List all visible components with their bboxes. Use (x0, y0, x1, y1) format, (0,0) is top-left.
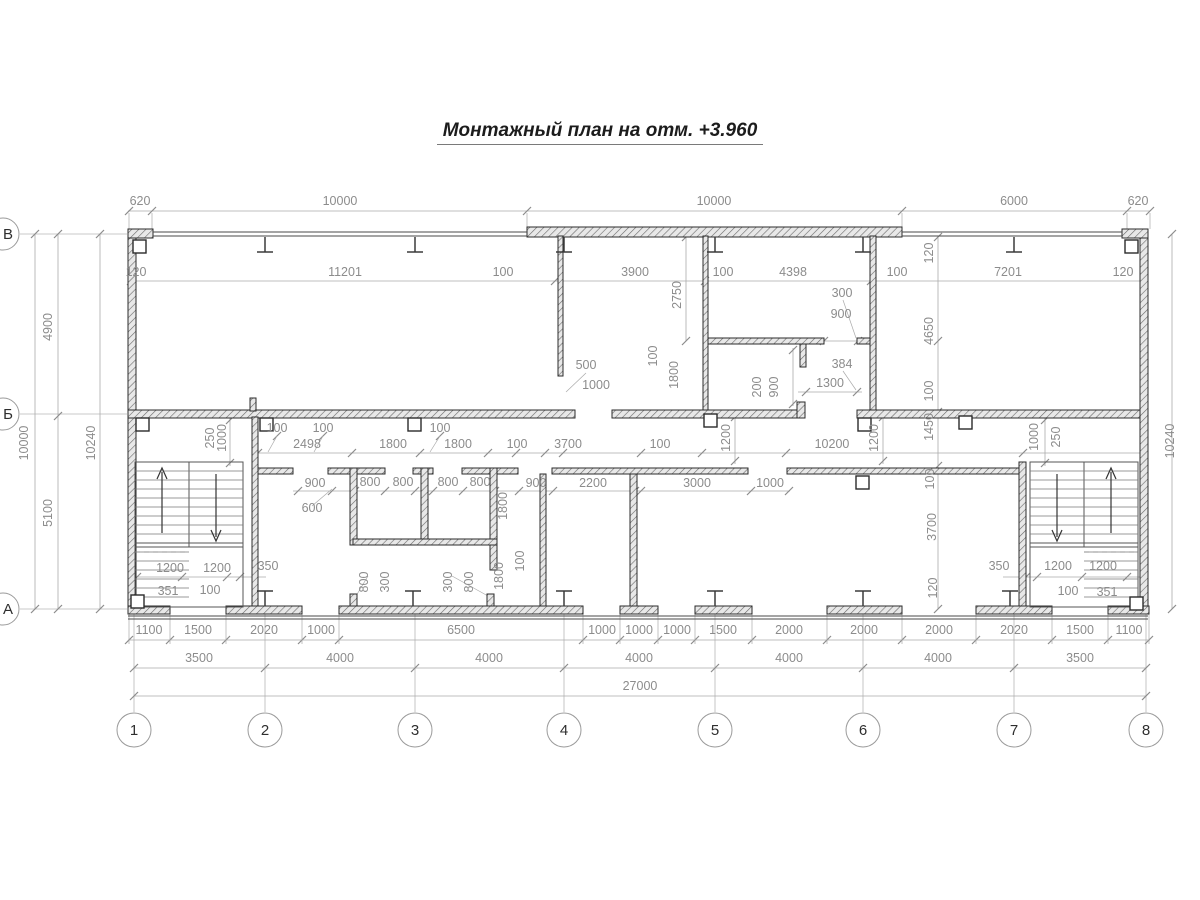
dim-label: 1800 (444, 437, 472, 451)
dim-label: 1000 (663, 623, 691, 637)
dim-label: 3700 (554, 437, 582, 451)
wall (827, 606, 902, 614)
dim-label: 1500 (184, 623, 212, 637)
dim-label: 100 (887, 265, 908, 279)
dim-label: 1200 (1089, 559, 1117, 573)
dim-label: 1000 (588, 623, 616, 637)
dim-label: 1000 (756, 476, 784, 490)
dim-label: 10000 (323, 194, 358, 208)
dim-label: 1100 (136, 623, 163, 637)
column-box-icon (959, 416, 972, 429)
leader-line (843, 371, 856, 390)
dim-label: 3500 (185, 651, 213, 665)
dim-label: 620 (130, 194, 151, 208)
wall (708, 338, 824, 344)
dim-label: 120 (926, 578, 940, 599)
wall (540, 474, 546, 613)
dim-label: 1000 (625, 623, 653, 637)
column-box-icon (1130, 597, 1143, 610)
dim-label: 11201 (328, 265, 362, 279)
dim-label: 4000 (924, 651, 952, 665)
column-box-icon (133, 240, 146, 253)
dim-label: 500 (576, 358, 597, 372)
drawing-page: { "title": "Монтажный план на отм. +3.96… (0, 0, 1200, 900)
dim-label: 900 (831, 307, 852, 321)
staircase-left (135, 462, 243, 607)
dim-label: 4000 (775, 651, 803, 665)
wall (250, 398, 256, 411)
dim-label: 120 (922, 243, 936, 264)
dim-label: 600 (302, 501, 323, 515)
column-box-icon (1125, 240, 1138, 253)
dim-label: 1200 (867, 424, 881, 452)
dim-label: 100 (646, 346, 660, 367)
wall (128, 229, 153, 238)
row-axis-label: А (3, 601, 13, 618)
wall (695, 606, 752, 614)
wall (128, 410, 575, 418)
dim-label: 800 (470, 475, 491, 489)
wall (797, 402, 805, 418)
dim-label: 10000 (697, 194, 732, 208)
wall (252, 417, 258, 613)
dim-label: 800 (393, 475, 414, 489)
dim-label: 1000 (1027, 423, 1041, 451)
wall (1140, 230, 1148, 614)
dim-label: 800 (438, 475, 459, 489)
wall (339, 606, 583, 614)
dim-label: 351 (1097, 585, 1118, 599)
dim-label: 4900 (41, 313, 55, 341)
wall (558, 236, 563, 376)
dim-label: 900 (305, 476, 326, 490)
dim-label: 2000 (850, 623, 878, 637)
dim-label: 100 (513, 551, 527, 572)
dim-label: 4000 (475, 651, 503, 665)
dim-label: 2750 (670, 281, 684, 309)
dim-label: 2020 (1000, 623, 1028, 637)
dim-label: 5100 (41, 499, 55, 527)
wall (487, 594, 494, 606)
wall (527, 227, 902, 237)
dim-label: 100 (1058, 584, 1079, 598)
wall (703, 236, 708, 410)
wall (1019, 462, 1026, 613)
wall (253, 468, 293, 474)
dim-label: 6500 (447, 623, 475, 637)
dim-label: 384 (832, 357, 853, 371)
dim-label: 6000 (1000, 194, 1028, 208)
wall (353, 539, 497, 545)
dim-label: 10000 (17, 426, 31, 461)
dim-label: 4650 (922, 317, 936, 345)
dim-label: 100 (923, 469, 937, 490)
wall (1122, 229, 1148, 238)
staircase-right (1030, 462, 1138, 607)
wall (350, 468, 357, 545)
dim-label: 2020 (250, 623, 278, 637)
dim-label: 100 (430, 421, 451, 435)
dim-label: 1800 (492, 562, 506, 590)
dim-label: 2200 (579, 476, 607, 490)
dim-label: 120 (126, 265, 147, 279)
dim-label: 10240 (84, 426, 98, 461)
dim-label: 200 (750, 377, 764, 398)
col-axis-label: 2 (261, 722, 269, 739)
col-axis-label: 8 (1142, 722, 1150, 739)
col-axis-label: 6 (859, 722, 867, 739)
dim-label: 1800 (667, 361, 681, 389)
dim-label: 1000 (307, 623, 335, 637)
dim-label: 900 (767, 377, 781, 398)
dim-label: 100 (493, 265, 514, 279)
dim-label: 1450 (922, 413, 936, 441)
leader-line (268, 436, 277, 452)
dim-label: 350 (258, 559, 279, 573)
dim-label: 2000 (925, 623, 953, 637)
column-box-icon (704, 414, 717, 427)
dim-label: 1500 (709, 623, 737, 637)
dim-label: 1200 (1044, 559, 1072, 573)
col-axis-label: 4 (560, 722, 568, 739)
dim-label: 4000 (625, 651, 653, 665)
column-box-icon (136, 418, 149, 431)
dim-label: 620 (1128, 194, 1149, 208)
dim-label: 2000 (775, 623, 803, 637)
leader-line (430, 436, 440, 452)
dim-label: 3500 (1066, 651, 1094, 665)
dim-label: 300 (378, 572, 392, 593)
dim-label: 300 (441, 572, 455, 593)
wall (421, 468, 428, 540)
dim-label: 1200 (203, 561, 231, 575)
dim-label: 250 (1049, 427, 1063, 448)
floor-plan-drawing: 6201000010000600062012011201100390010043… (0, 0, 1200, 900)
column-box-icon (856, 476, 869, 489)
dim-label: 1300 (816, 376, 844, 390)
wall (870, 236, 876, 410)
dim-label: 1100 (1116, 623, 1143, 637)
dim-label: 1000 (215, 424, 229, 452)
row-axis-label: Б (3, 406, 13, 423)
dim-label: 800 (360, 475, 381, 489)
dim-label: 100 (200, 583, 221, 597)
dim-label: 800 (462, 572, 476, 593)
dimension-labels: 6201000010000600062012011201100390010043… (17, 194, 1177, 693)
dim-label: 27000 (623, 679, 658, 693)
dim-label: 900 (526, 476, 547, 490)
dim-label: 4000 (326, 651, 354, 665)
wall (800, 344, 806, 367)
dim-label: 2498 (293, 437, 321, 451)
dim-label: 1200 (156, 561, 184, 575)
dim-label: 1800 (496, 492, 510, 520)
dim-label: 100 (713, 265, 734, 279)
dim-label: 1200 (719, 424, 733, 452)
dim-label: 100 (507, 437, 528, 451)
dim-label: 3700 (925, 513, 939, 541)
dim-label: 100 (313, 421, 334, 435)
dim-label: 4398 (779, 265, 807, 279)
wall (350, 594, 357, 606)
dim-label: 3000 (683, 476, 711, 490)
column-box-icon (408, 418, 421, 431)
col-axis-label: 3 (411, 722, 419, 739)
dim-label: 1500 (1066, 623, 1094, 637)
dim-label: 100 (922, 381, 936, 402)
dim-label: 1800 (379, 437, 407, 451)
dim-label: 120 (1113, 265, 1134, 279)
col-axis-label: 7 (1010, 722, 1018, 739)
dim-label: 100 (650, 437, 671, 451)
dim-label: 10240 (1163, 424, 1177, 459)
wall (857, 338, 870, 344)
dim-label: 7201 (994, 265, 1022, 279)
dim-label: 100 (267, 421, 288, 435)
wall (857, 410, 1140, 418)
col-axis-label: 5 (711, 722, 719, 739)
wall (630, 474, 637, 613)
dim-label: 3900 (621, 265, 649, 279)
row-axis-label: В (3, 226, 13, 243)
wall (787, 468, 1023, 474)
dim-label: 351 (158, 584, 179, 598)
wall (620, 606, 658, 614)
dim-label: 300 (832, 286, 853, 300)
dim-label: 350 (989, 559, 1010, 573)
dim-label: 10200 (815, 437, 850, 451)
dim-label: 1000 (582, 378, 610, 392)
wall (552, 468, 748, 474)
column-box-icon (131, 595, 144, 608)
dim-label: 800 (357, 572, 371, 593)
col-axis-label: 1 (130, 722, 138, 739)
